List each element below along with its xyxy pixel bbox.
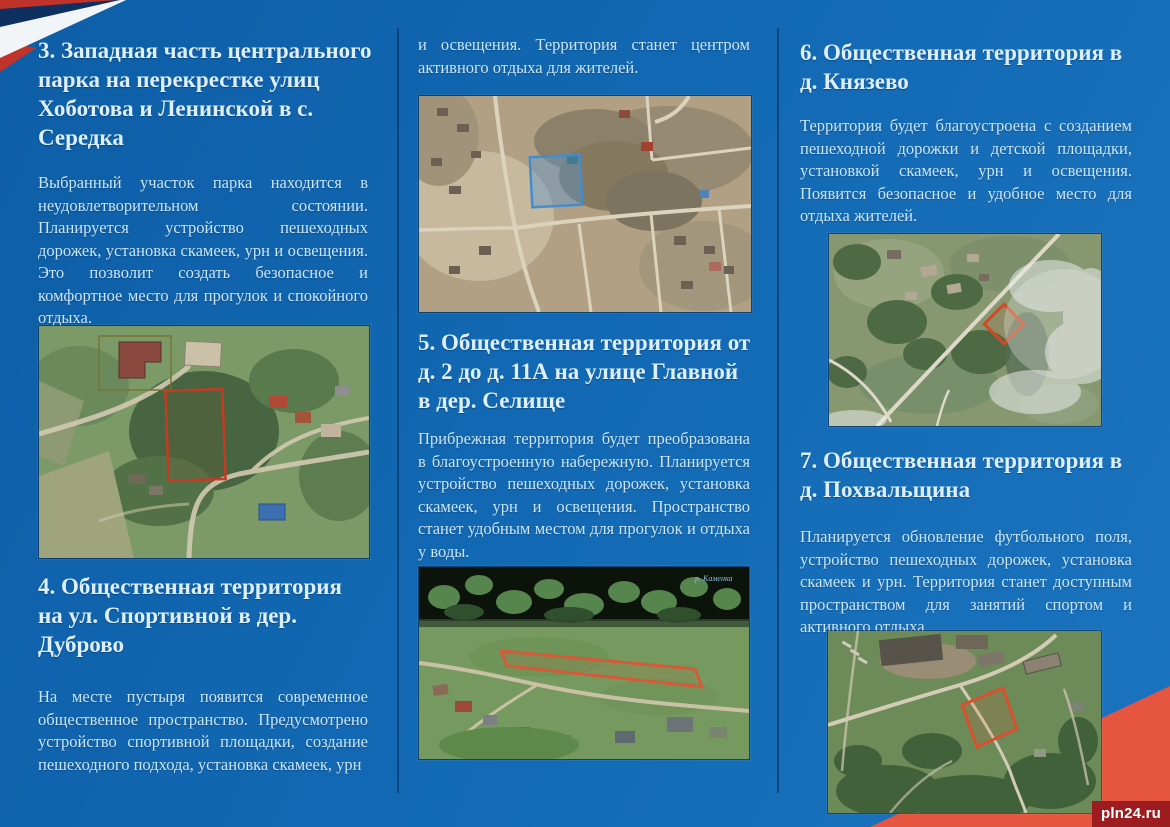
section-3-title: 3. Западная часть центрального парка на … xyxy=(38,36,372,152)
section-6-body: Территория будет благоустроена с создани… xyxy=(800,115,1132,228)
section-3-body: Выбранный участок парка находится в неуд… xyxy=(38,172,368,330)
section-4-body-continued: и освещения. Территория станет центром а… xyxy=(418,34,750,79)
brochure-page: 3. Западная часть центрального парка на … xyxy=(0,0,1170,827)
section-5-title: 5. Общественная территория от д. 2 до д.… xyxy=(418,328,754,415)
river-label: р. Каменка xyxy=(694,574,732,583)
section-4-body: На месте пустыря появится современное об… xyxy=(38,686,368,776)
watermark-badge: pln24.ru xyxy=(1092,801,1170,827)
column-divider-left xyxy=(397,28,399,793)
satellite-image-dubrovo xyxy=(418,95,752,313)
section-6-title: 6. Общественная территория в д. Князево xyxy=(800,38,1134,96)
column-divider-right xyxy=(777,28,779,793)
section-4-title: 4. Общественная территория на ул. Спорти… xyxy=(38,572,372,659)
section-5-body: Прибрежная территория будет преобразован… xyxy=(418,428,750,563)
satellite-image-knyazevo xyxy=(828,233,1102,427)
satellite-image-selishche: р. Каменка xyxy=(418,566,750,760)
satellite-image-seredka-park xyxy=(38,325,370,559)
section-7-body: Планируется обновление футбольного поля,… xyxy=(800,526,1132,639)
section-7-title: 7. Общественная территория в д. Похвальщ… xyxy=(800,446,1134,504)
satellite-image-pokhvalshchina xyxy=(827,630,1102,814)
plot-outline-seredka xyxy=(165,389,225,481)
plot-outline-dubrovo xyxy=(530,155,583,208)
